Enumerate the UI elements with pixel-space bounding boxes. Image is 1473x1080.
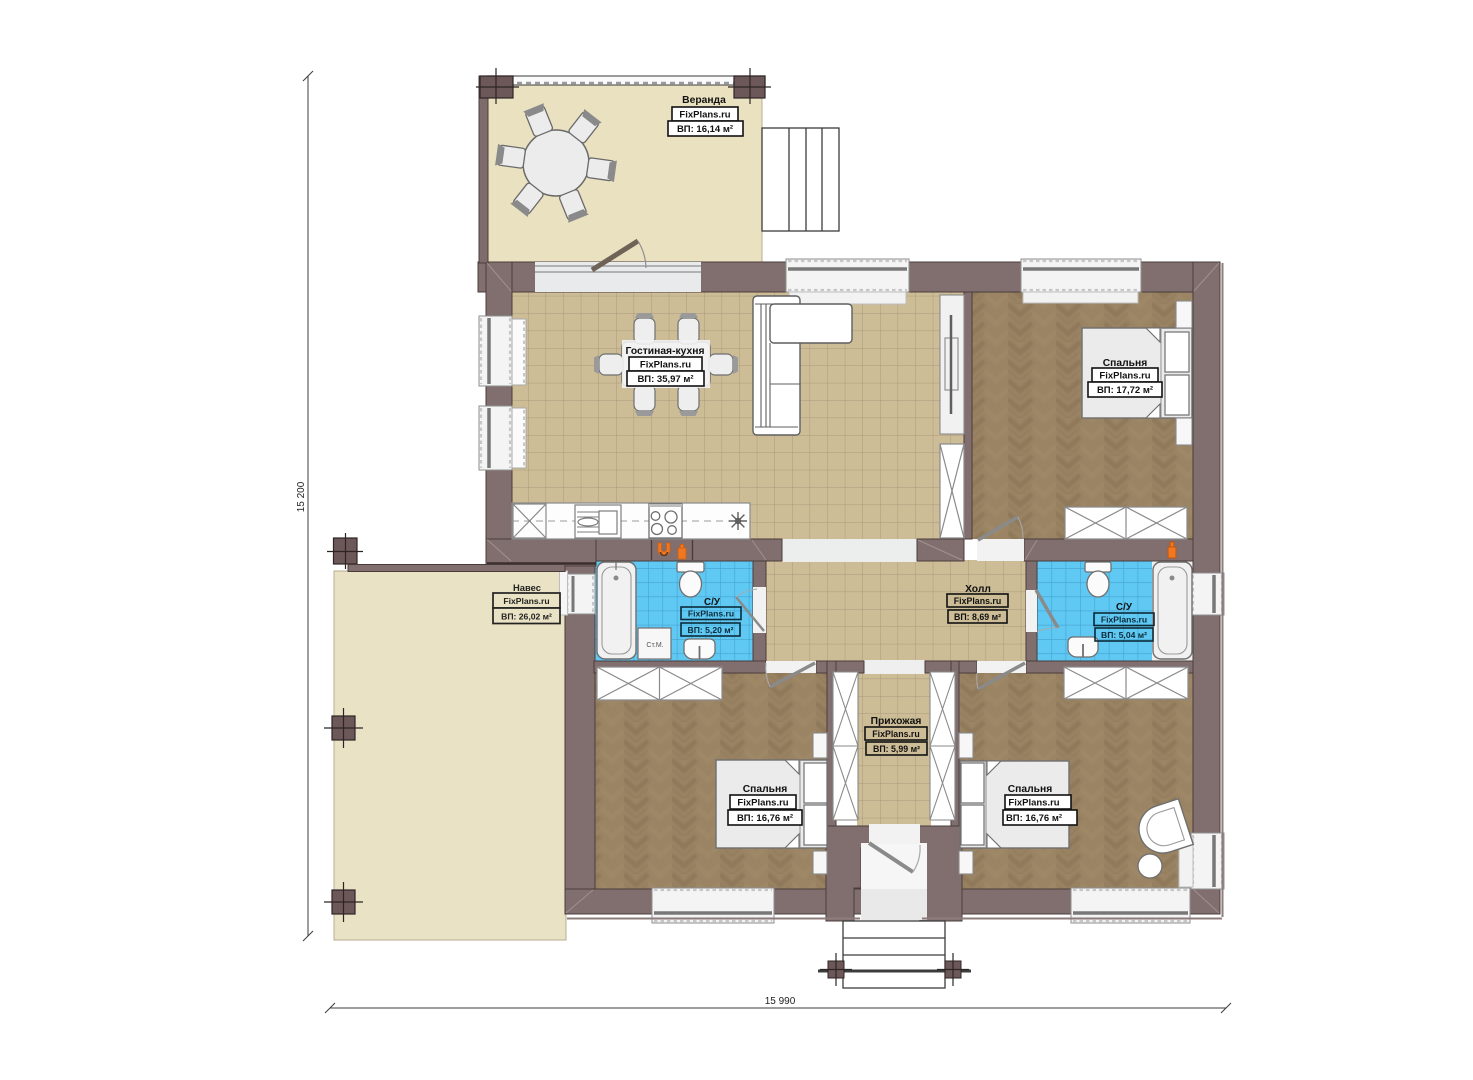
svg-text:С/У: С/У — [1116, 602, 1133, 613]
svg-text:FixPlans.ru: FixPlans.ru — [688, 609, 734, 619]
svg-text:Прихожая: Прихожая — [871, 716, 922, 727]
svg-text:ВП: 16,76 м²: ВП: 16,76 м² — [1006, 813, 1062, 824]
svg-text:FixPlans.ru: FixPlans.ru — [1101, 615, 1147, 625]
svg-text:ВП: 16,76 м²: ВП: 16,76 м² — [737, 813, 793, 824]
svg-text:FixPlans.ru: FixPlans.ru — [1008, 798, 1059, 809]
svg-text:15 990: 15 990 — [765, 996, 796, 1007]
svg-text:FixPlans.ru: FixPlans.ru — [954, 596, 1001, 606]
svg-text:ВП: 5,99 м²: ВП: 5,99 м² — [873, 744, 920, 754]
svg-text:FixPlans.ru: FixPlans.ru — [640, 360, 691, 371]
svg-text:FixPlans.ru: FixPlans.ru — [503, 596, 549, 606]
svg-text:ВП: 8,69 м²: ВП: 8,69 м² — [954, 612, 1001, 622]
svg-text:FixPlans.ru: FixPlans.ru — [679, 110, 730, 121]
svg-text:ВП: 5,20 м²: ВП: 5,20 м² — [688, 625, 734, 635]
svg-text:15 200: 15 200 — [296, 481, 307, 512]
svg-text:FixPlans.ru: FixPlans.ru — [1099, 371, 1150, 382]
svg-text:FixPlans.ru: FixPlans.ru — [872, 729, 919, 739]
svg-text:Гостиная-кухня: Гостиная-кухня — [626, 346, 705, 357]
svg-text:ВП: 16,14 м²: ВП: 16,14 м² — [677, 124, 733, 135]
svg-text:Спальня: Спальня — [743, 784, 787, 795]
svg-text:ВП: 17,72 м²: ВП: 17,72 м² — [1097, 385, 1153, 396]
svg-text:Веранда: Веранда — [682, 95, 726, 106]
svg-text:FixPlans.ru: FixPlans.ru — [737, 798, 788, 809]
svg-text:ВП: 5,04 м²: ВП: 5,04 м² — [1101, 630, 1147, 640]
svg-text:ВП: 26,02 м²: ВП: 26,02 м² — [501, 612, 552, 622]
svg-text:Навес: Навес — [513, 582, 541, 593]
svg-text:ВП: 35,97 м²: ВП: 35,97 м² — [637, 374, 693, 385]
svg-text:Ст.М.: Ст.М. — [646, 642, 663, 649]
svg-text:Спальня: Спальня — [1008, 784, 1052, 795]
